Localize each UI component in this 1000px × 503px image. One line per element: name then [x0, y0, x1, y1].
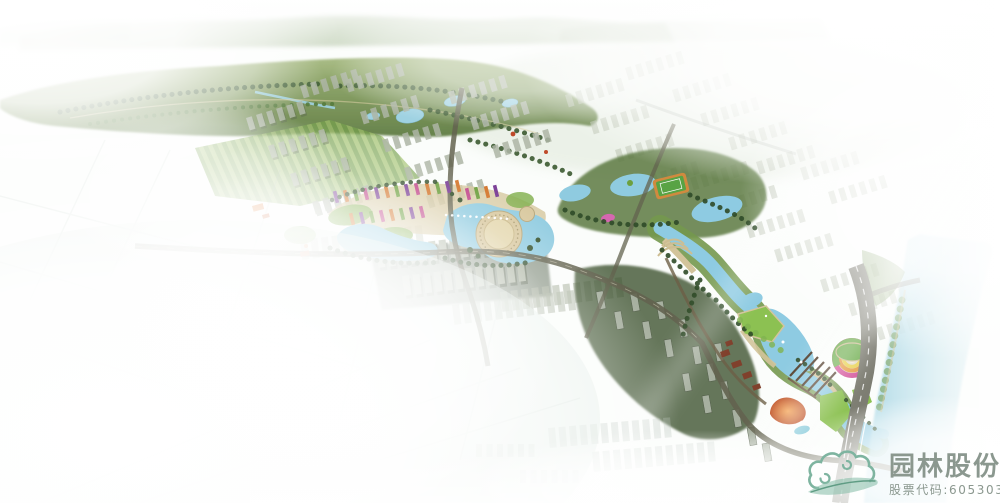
cloud-leaf-icon [804, 448, 884, 502]
stock-code: 股票代码:605303 [889, 484, 1000, 496]
company-logo: 园林股份 股票代码:605303 [804, 447, 1000, 503]
white-mist [0, 0, 1000, 503]
boat [782, 341, 785, 344]
aerial-rendering-canvas: 园林股份 股票代码:605303 [0, 0, 1000, 503]
company-name: 园林股份 [889, 454, 1000, 480]
masterplan-rendering [0, 0, 1000, 503]
